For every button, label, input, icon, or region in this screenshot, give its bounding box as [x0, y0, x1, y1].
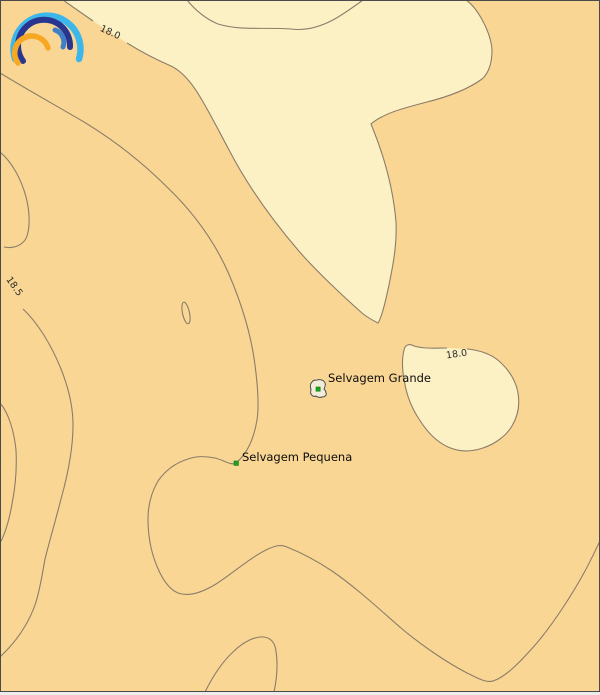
- marker-selvagem-pequena: [234, 461, 238, 465]
- place-label-selvagem-grande: Selvagem Grande: [328, 371, 431, 385]
- marker-selvagem-grande: [316, 387, 320, 391]
- place-label-selvagem-pequena: Selvagem Pequena: [242, 450, 352, 464]
- map-container: 18.0 18.5 18.0 Selvagem Grande Selvagem …: [0, 0, 600, 695]
- contour-map-canvas: 18.0 18.5 18.0 Selvagem Grande Selvagem …: [0, 0, 600, 692]
